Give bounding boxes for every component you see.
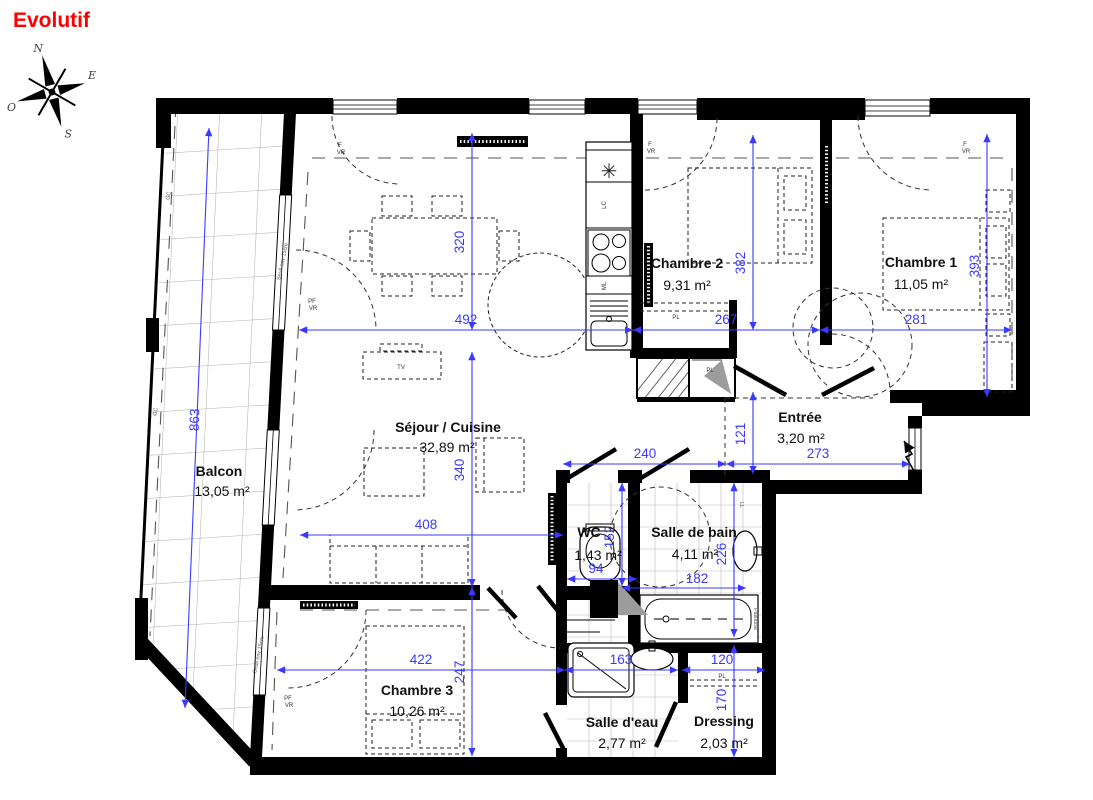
svg-text:340: 340 [452,459,467,482]
svg-text:240: 240 [634,446,657,461]
room-label-salle-de-bain: Salle de bain [651,524,737,540]
window-label-f: F [963,142,967,148]
dim-340: 340 [452,352,472,587]
svg-text:408: 408 [415,517,438,532]
room-label-sejour: Séjour / Cuisine [395,419,501,435]
dim-240: 240 [563,446,726,464]
room-label-chambre2: Chambre 2 [651,255,724,271]
svg-text:382: 382 [733,252,748,275]
window-icon [333,100,397,114]
window-label-f: F [648,142,652,148]
svg-text:163: 163 [610,652,633,667]
dim-408: 408 [300,517,563,535]
svg-text:863: 863 [187,408,203,431]
kitchen-block: ✳ LC ML [586,142,632,350]
svg-text:247: 247 [452,661,467,684]
tv-label: TV [397,365,405,371]
svg-text:267: 267 [715,312,738,327]
entry-door [909,428,921,470]
window-icon [865,100,930,116]
svg-text:152: 152 [602,526,617,549]
svg-text:492: 492 [455,312,478,327]
room-label-wc: WC [577,524,600,540]
compass-south-label: S [65,127,73,140]
window-icon [638,100,697,114]
guardrail-label: GC [152,407,159,416]
room-area-chambre2: 9,31 m² [663,277,711,293]
room-area-wc: 1,43 m² [574,547,622,563]
floor-plan-page: ✳ LC ML Paillasse [0,0,1093,800]
svg-text:393: 393 [967,255,982,278]
washer-column-label: LL [738,502,744,508]
room-area-entree: 3,20 m² [777,430,825,446]
radiator-icon [822,143,831,207]
dim-492: 492 [299,312,633,330]
radiator-icon [300,601,358,609]
window-label-f: F [338,143,342,149]
window-icon [529,100,585,114]
radiator-icon [644,243,653,307]
room-label-chambre1: Chambre 1 [885,254,958,270]
bathroom-sink-icon [733,531,762,571]
closet-label: PL [718,674,726,680]
room-area-chambre3: 10,26 m² [389,703,445,719]
floor-plan-drawing: ✳ LC ML Paillasse [0,0,1093,800]
room-label-chambre3: Chambre 3 [381,682,454,698]
countertop-label: Paillasse [752,608,758,630]
washer-label: ML [602,281,608,290]
dim-121: 121 [733,392,753,474]
svg-text:120: 120 [711,652,734,667]
svg-text:273: 273 [807,446,830,461]
window-label-vr: VR [309,306,318,312]
window-label-vr: VR [962,149,971,155]
window-label-pf: PF [308,299,316,305]
dim-281: 281 [820,312,1012,330]
window-label-vr: VR [285,703,294,709]
page-title: Evolutif [13,9,91,32]
window-icon [262,430,279,525]
svg-text:182: 182 [686,571,709,586]
dim-273: 273 [726,446,910,464]
dim-120: 120 [682,652,765,670]
room-label-balcon: Balcon [196,463,243,479]
radiator-icon [457,136,528,147]
room-area-sejour: 32,89 m² [419,439,475,455]
bathtub-icon: Paillasse [640,595,758,643]
room-area-salle-deau: 2,77 m² [598,735,646,751]
dim-422: 422 [277,652,565,670]
window-label-vr: VR [337,150,346,156]
room-area-dressing: 2,03 m² [700,735,748,751]
svg-text:281: 281 [905,312,928,327]
dishwasher-label: LC [602,200,608,208]
radiator-icon [548,493,556,565]
compass-west-label: O [7,101,16,114]
svg-text:320: 320 [452,231,467,254]
dim-247: 247 [452,587,472,756]
closet-label: PL [706,368,714,374]
entry-closet [689,358,735,398]
svg-text:94: 94 [588,561,604,576]
compass-icon: N E S O [0,28,112,155]
svg-text:170: 170 [714,689,729,712]
svg-text:121: 121 [733,423,748,446]
closet-label: PL [672,315,680,321]
room-label-salle-deau: Salle d'eau [586,714,659,730]
dim-182: 182 [622,571,746,588]
room-area-salle-de-bain: 4,11 m² [672,546,719,562]
window-label-pf: PF [284,696,292,702]
dim-320: 320 [452,133,472,330]
compass-north-label: N [32,42,43,55]
room-area-balcon: 13,05 m² [194,483,250,499]
window-label-vr: VR [647,149,656,155]
room-label-dressing: Dressing [694,713,754,729]
hood-icon: ✳ [601,161,618,183]
dim-267: 267 [633,312,820,330]
room-label-entree: Entrée [778,409,822,425]
room-area-chambre1: 11,05 m² [894,276,949,292]
compass-east-label: E [87,69,96,82]
svg-text:422: 422 [410,652,433,667]
